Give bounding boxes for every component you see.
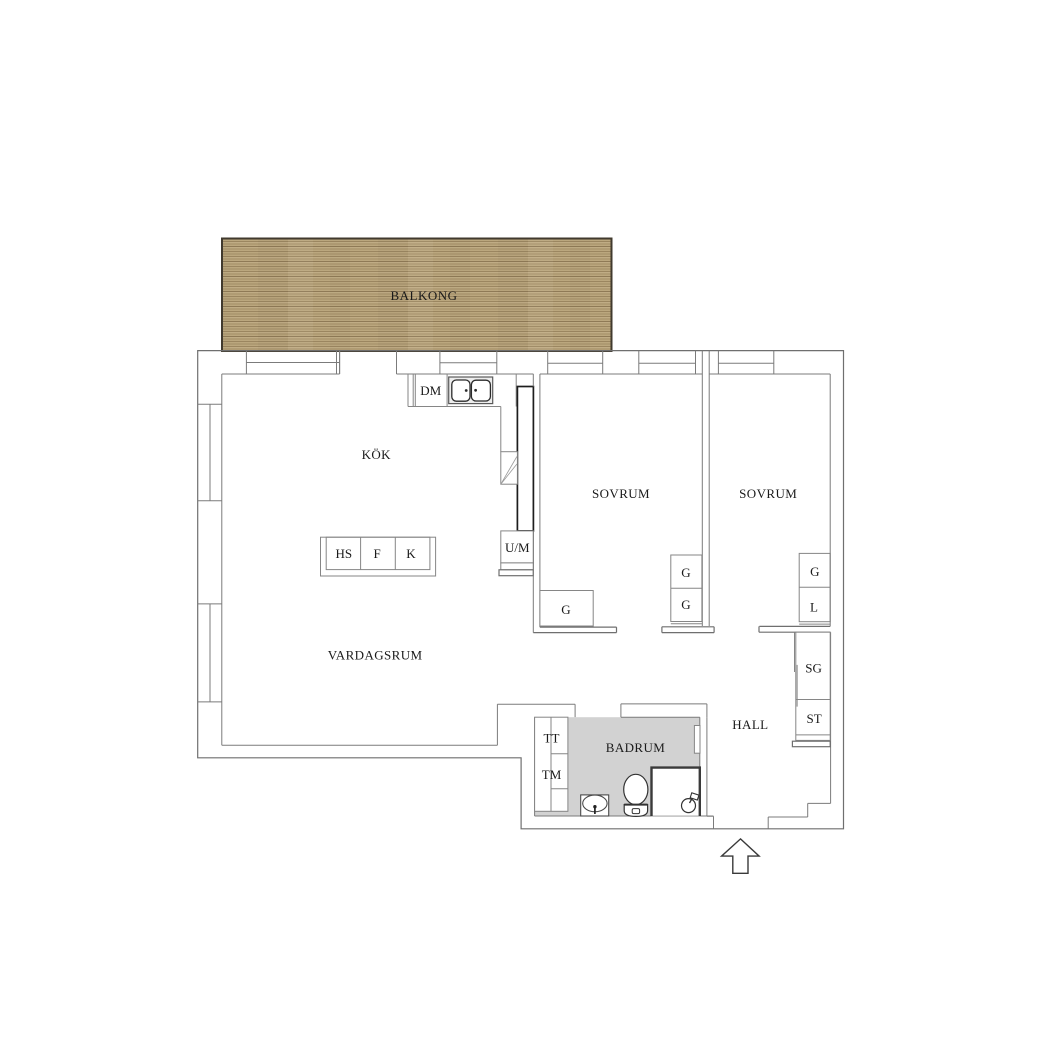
svg-text:TT: TT: [544, 731, 560, 746]
svg-text:ST: ST: [807, 711, 822, 726]
svg-text:SOVRUM: SOVRUM: [739, 486, 797, 501]
svg-text:HALL: HALL: [732, 717, 768, 732]
svg-text:HS: HS: [335, 546, 352, 561]
svg-text:SG: SG: [805, 661, 822, 676]
svg-text:L: L: [810, 600, 818, 615]
svg-text:G: G: [561, 602, 570, 617]
svg-text:BALKONG: BALKONG: [390, 288, 457, 303]
svg-text:BADRUM: BADRUM: [606, 740, 666, 755]
svg-text:VARDAGSRUM: VARDAGSRUM: [328, 648, 423, 663]
svg-text:G: G: [681, 565, 690, 580]
svg-text:U/M: U/M: [505, 540, 530, 555]
svg-text:G: G: [681, 597, 690, 612]
svg-text:TM: TM: [542, 767, 562, 782]
svg-text:G: G: [810, 564, 819, 579]
svg-text:F: F: [373, 546, 380, 561]
svg-text:KÖK: KÖK: [362, 447, 392, 462]
svg-text:SOVRUM: SOVRUM: [592, 486, 650, 501]
svg-text:K: K: [406, 546, 416, 561]
svg-text:DM: DM: [420, 383, 441, 398]
